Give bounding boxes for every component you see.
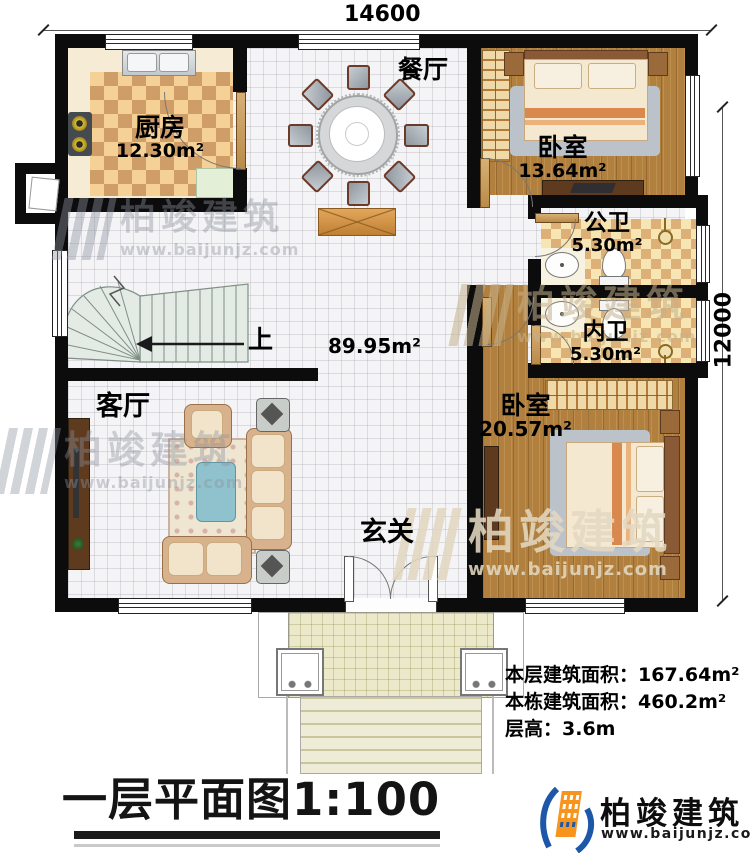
stat-value: 460.2m² <box>638 691 726 713</box>
living-sofa-right-cushion <box>251 470 285 504</box>
room-name: 客厅 <box>96 392 150 421</box>
room-name: 餐厅 <box>398 56 448 83</box>
room-label-living: 客厅 <box>96 392 150 421</box>
living-sofa-bottom-cushion <box>168 542 204 576</box>
room-name: 公卫 <box>562 211 652 236</box>
bedroom2-pillow-bottom <box>636 496 664 542</box>
stat-label: 层高： <box>505 718 562 740</box>
porch-column-right <box>460 648 508 696</box>
living-plant <box>72 538 84 550</box>
stove-burner-top <box>72 116 87 131</box>
page-title: 一层平面图1:100 <box>62 763 440 828</box>
wall-dining-bedroom1 <box>467 48 481 195</box>
dimension-top-label: 14600 <box>344 2 421 27</box>
stairs-up-label: 上 <box>248 326 273 353</box>
public-bath-shower-arm <box>664 218 666 232</box>
wall-bath-bedroom2 <box>528 363 708 378</box>
dining-chair <box>404 124 429 147</box>
living-armchair-cushion <box>191 410 223 439</box>
room-area: 13.64m² <box>505 161 620 182</box>
bedroom2-blanket-stripe <box>612 443 622 545</box>
room-label-foyer: 玄关 <box>360 518 414 547</box>
bump-out-bottom <box>15 213 63 224</box>
stat-building-area: 本栋建筑面积：460.2m² <box>505 687 726 714</box>
wall-hall-bedroom2 <box>467 285 483 598</box>
window-private-bath <box>696 300 710 362</box>
stat-label: 本层建筑面积： <box>505 664 638 686</box>
dining-chair <box>347 181 370 206</box>
room-area: 12.30m² <box>105 141 215 162</box>
stat-value: 167.64m² <box>638 664 739 686</box>
bedroom1-blanket-stripe <box>525 108 645 118</box>
room-name: 玄关 <box>360 518 414 547</box>
room-area: 20.57m² <box>468 419 583 441</box>
brand-logo-icon <box>535 783 595 853</box>
room-area: 5.30m² <box>558 345 653 364</box>
dimension-line-top <box>42 30 712 31</box>
bedroom1-blanket-stripe2 <box>525 120 645 125</box>
room-label-dining: 餐厅 <box>398 56 448 83</box>
wall-bath-mid <box>541 285 696 298</box>
dining-chair <box>288 124 313 147</box>
room-name: 内卫 <box>558 320 653 345</box>
bedroom1-nightstand-right <box>648 52 668 76</box>
window-stairs-left <box>52 250 68 337</box>
bedroom1-pillow-right <box>588 63 636 89</box>
kitchen-sink-basin-right <box>159 53 189 72</box>
room-name: 厨房 <box>105 114 215 141</box>
bedroom1-pillow-left <box>534 63 582 89</box>
room-label-private-bath: 内卫 5.30m² <box>558 320 653 364</box>
stat-value: 3.6m <box>562 718 615 740</box>
window-bedroom1-right <box>685 75 700 177</box>
title-underline <box>74 831 440 839</box>
stat-floor-height: 层高：3.6m <box>505 714 615 741</box>
living-coffee-table <box>196 462 236 522</box>
window-dining-top <box>298 34 420 50</box>
kitchen-fridge <box>196 168 234 198</box>
living-side-table-bottom <box>256 550 290 584</box>
public-bath-sink <box>545 252 579 278</box>
brand-url: www.baijunjz.com <box>601 826 750 842</box>
room-label-bedroom2: 卧室 20.57m² <box>468 392 583 441</box>
living-side-table-top <box>256 398 290 432</box>
bedroom2-blanket-stripe2 <box>626 443 631 545</box>
hall-area-label: 89.95m² <box>328 336 421 358</box>
dining-sideboard <box>318 208 396 236</box>
watermark-logo-mark <box>0 428 61 494</box>
window-kitchen-top <box>105 34 193 50</box>
bedroom2-nightstand-bottom <box>660 556 680 580</box>
room-label-public-bath: 公卫 5.30m² <box>562 211 652 255</box>
wall-kitchen-right-top <box>233 48 247 92</box>
title-underline-thin <box>74 844 440 847</box>
room-label-kitchen: 厨房 12.30m² <box>105 114 215 162</box>
floor-plan-page: 柏竣建筑 www.baijunjz.com 柏竣建筑 www.baijunjz.… <box>0 0 750 855</box>
wall-kitchen-bottom <box>55 198 247 212</box>
wall-stairs-bottom <box>55 368 318 381</box>
bedroom2-nightstand-top <box>660 410 680 434</box>
bedroom1-laptop <box>570 183 616 193</box>
bump-out-chute <box>28 177 59 212</box>
bedroom2-tv-cabinet <box>484 446 499 540</box>
living-sofa-right-cushion <box>251 506 285 540</box>
stove-burner-bottom <box>72 137 87 152</box>
bedroom2-pillow-top <box>636 446 664 492</box>
room-area: 5.30m² <box>562 236 652 255</box>
bedroom1-nightstand-left <box>504 52 524 76</box>
dining-chair <box>347 65 370 90</box>
living-sofa-bottom-cushion <box>206 542 242 576</box>
wall-right-lower <box>685 378 698 612</box>
living-sofa-right-cushion <box>251 434 285 468</box>
porch-column-left <box>276 648 324 696</box>
stat-label: 本栋建筑面积： <box>505 691 638 713</box>
window-living-bottom <box>118 598 252 614</box>
room-name: 卧室 <box>468 392 583 419</box>
window-public-bath <box>696 225 710 283</box>
dimension-right-label: 12000 <box>712 305 737 369</box>
room-name: 卧室 <box>505 134 620 161</box>
bedroom2-bed-headboard <box>664 436 680 554</box>
public-bath-shower-head <box>658 230 673 245</box>
dining-table-center <box>345 122 369 146</box>
room-label-bedroom1: 卧室 13.64m² <box>505 134 620 182</box>
kitchen-sink-basin-left <box>127 53 157 72</box>
window-bedroom2-bottom <box>525 598 625 614</box>
stairs <box>58 274 254 376</box>
living-tv <box>73 448 79 518</box>
porch-step-rail-right <box>492 696 494 774</box>
wall-bedroom1-bottom-right <box>528 195 708 208</box>
entry-door-threshold <box>345 598 437 612</box>
stat-floor-area: 本层建筑面积：167.64m² <box>505 660 739 687</box>
